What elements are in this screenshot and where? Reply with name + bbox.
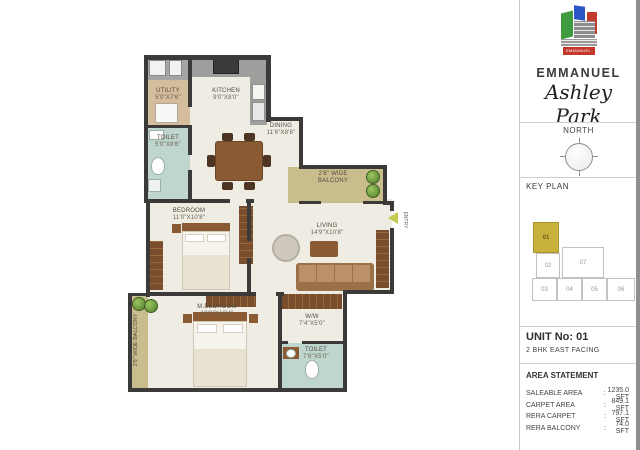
wall-segment <box>144 55 148 203</box>
wall-segment <box>128 293 132 392</box>
wall-segment <box>266 55 271 122</box>
key-plan-unit-02: 02 <box>536 253 560 278</box>
area-row: RERA BALCONY : 74.0 SFT <box>526 423 629 435</box>
room-name: TOILET <box>288 347 344 354</box>
fridge <box>252 102 265 121</box>
unit-type: 2 BHK EAST FACING <box>526 347 599 354</box>
room-dim: 7'6"X5'0" <box>288 354 344 361</box>
area-label: RERA BALCONY <box>526 425 602 432</box>
room-dim: 11'6"X8'6" <box>255 130 307 137</box>
wall-segment <box>247 199 251 241</box>
divider <box>520 122 637 123</box>
room-dim: 13'0"X10'4" <box>184 311 250 318</box>
wall-segment <box>266 117 303 121</box>
room-label-toilet-1: TOILET 5'0"X8'6" <box>146 135 190 149</box>
area-statement-title: AREA STATEMENT <box>526 371 598 380</box>
wall-segment <box>144 55 271 60</box>
key-plan-unit-05: 05 <box>582 278 607 301</box>
key-plan-title: KEY PLAN <box>526 182 569 191</box>
key-plan-unit-04: 04 <box>557 278 582 301</box>
room-label-living: LIVING 14'9"X10'8" <box>299 223 355 237</box>
bed1-blanket <box>183 255 229 289</box>
dining-table <box>215 141 263 181</box>
room-name: TOILET <box>146 135 190 142</box>
wall-segment <box>146 292 256 296</box>
sofa-cushions <box>299 265 371 282</box>
divider <box>520 363 637 364</box>
area-label: SALEABLE AREA <box>526 390 602 397</box>
project-name: Ashley Park <box>520 80 637 128</box>
wall-segment <box>247 258 251 294</box>
wall-segment <box>302 341 347 344</box>
room-name: W/W <box>284 314 340 321</box>
bedroom-wardrobe <box>150 241 163 290</box>
bed1-headboard <box>182 223 230 231</box>
dining-chair <box>207 155 215 167</box>
wall-segment <box>299 165 387 169</box>
toilet1-wc <box>151 157 165 175</box>
rug <box>272 234 300 262</box>
area-label: RERA CARPET <box>526 413 602 420</box>
bed2-blanket <box>194 349 246 386</box>
room-dim: 5'0"X8'6" <box>146 142 190 149</box>
wall-segment <box>390 201 394 211</box>
room-name: UTILITY <box>146 88 190 95</box>
dining-chair <box>263 155 271 167</box>
key-plan-unit-03: 03 <box>532 278 557 301</box>
logo-shape <box>561 39 597 46</box>
dining-chair <box>222 182 233 190</box>
room-label-master-bedroom: M.BEDROOM 13'0"X10'4" <box>184 304 250 318</box>
washing-machine <box>149 60 166 76</box>
wall-segment <box>343 290 394 294</box>
wall-segment <box>383 165 387 205</box>
balcony-left-label: 2'6" WIDE BALCONY <box>133 305 145 375</box>
floor-passage <box>266 165 290 203</box>
wall-segment <box>390 228 394 294</box>
wall-segment <box>278 341 288 344</box>
wall-segment <box>188 170 192 202</box>
dining-chair <box>222 133 233 141</box>
page-edge-strip <box>636 0 640 450</box>
room-label-utility: UTILITY 5'0"X7'6" <box>146 88 190 102</box>
room-label-kitchen: KITCHEN 9'0"X8'0" <box>198 88 254 102</box>
info-sidebar: EMMANUEL EMMANUEL Ashley Park NORTH KEY … <box>519 0 637 450</box>
key-plan-unit-07: 07 <box>562 247 604 278</box>
tv-console <box>376 230 389 288</box>
divider <box>520 177 637 178</box>
room-label-walkin-wardrobe: W/W 7'4"X5'0" <box>284 314 340 328</box>
north-label: NORTH <box>520 126 637 135</box>
wall-segment <box>146 199 150 297</box>
room-name: KITCHEN <box>198 88 254 95</box>
divider <box>520 326 637 327</box>
room-dim: 7'4"X5'0" <box>284 321 340 328</box>
key-plan-unit-06: 06 <box>607 278 635 301</box>
area-value: 74.0 SFT <box>608 421 629 435</box>
room-name: M.BEDROOM <box>184 304 250 311</box>
compass-icon <box>565 143 593 171</box>
wall-segment <box>299 201 321 204</box>
walkin-wardrobe-shelves <box>282 294 342 309</box>
coffee-table <box>310 241 338 257</box>
room-label-dining: DINING 11'6"X8'6" <box>255 123 307 137</box>
logo-banner: EMMANUEL <box>563 47 595 55</box>
bed2-pillow <box>223 324 243 333</box>
bed2-side-table <box>249 314 258 323</box>
laundry-unit <box>169 60 182 76</box>
room-dim: 5'0"X7'6" <box>146 95 190 102</box>
toilet2-wc <box>305 360 319 379</box>
area-statement-table: SALEABLE AREA : 1235.0 SFT CARPET AREA :… <box>526 388 629 434</box>
room-label-toilet-2: TOILET 7'6"X5'0" <box>288 347 344 361</box>
wall-segment <box>144 125 192 128</box>
logo-shape <box>561 11 573 40</box>
stove <box>213 59 239 74</box>
brand-name: EMMANUEL <box>520 66 637 80</box>
room-dim: 14'9"X10'8" <box>299 230 355 237</box>
plant-icon <box>366 184 380 198</box>
wall-segment <box>363 201 387 204</box>
dining-chair <box>244 182 255 190</box>
bed1-side-table <box>172 224 181 233</box>
bed1-pillow <box>185 234 204 242</box>
plant-icon <box>144 299 158 313</box>
dining-chair <box>244 133 255 141</box>
balcony-top-label: 2'6" WIDE BALCONY <box>311 171 355 185</box>
entry-arrow-icon <box>388 212 398 224</box>
plant-icon <box>366 170 380 184</box>
unit-number: UNIT No: 01 <box>526 331 588 343</box>
key-plan-unit-01: 01 <box>533 222 559 253</box>
room-dim: 11'0"X10'8" <box>158 215 220 222</box>
area-label: CARPET AREA <box>526 402 602 409</box>
toilet1-shower <box>148 179 161 192</box>
wall-segment <box>128 388 347 392</box>
room-label-bedroom: BEDROOM 11'0"X10'8" <box>158 208 220 222</box>
entry-label: ENTRY <box>400 208 408 232</box>
room-name: LIVING <box>299 223 355 230</box>
room-name: DINING <box>255 123 307 130</box>
logo-shape <box>574 5 585 21</box>
room-name: BEDROOM <box>158 208 220 215</box>
emmanuel-logo-icon: EMMANUEL <box>561 4 597 56</box>
room-dim: 9'0"X8'0" <box>198 95 254 102</box>
bed2-pillow <box>197 324 217 333</box>
utility-appliance <box>155 103 178 123</box>
bed1-pillow <box>207 234 226 242</box>
logo-shape <box>574 21 595 38</box>
wall-segment <box>146 199 230 203</box>
floor-plan: UTILITY 5'0"X7'6" KITCHEN 9'0"X8'0" TOIL… <box>0 0 519 450</box>
